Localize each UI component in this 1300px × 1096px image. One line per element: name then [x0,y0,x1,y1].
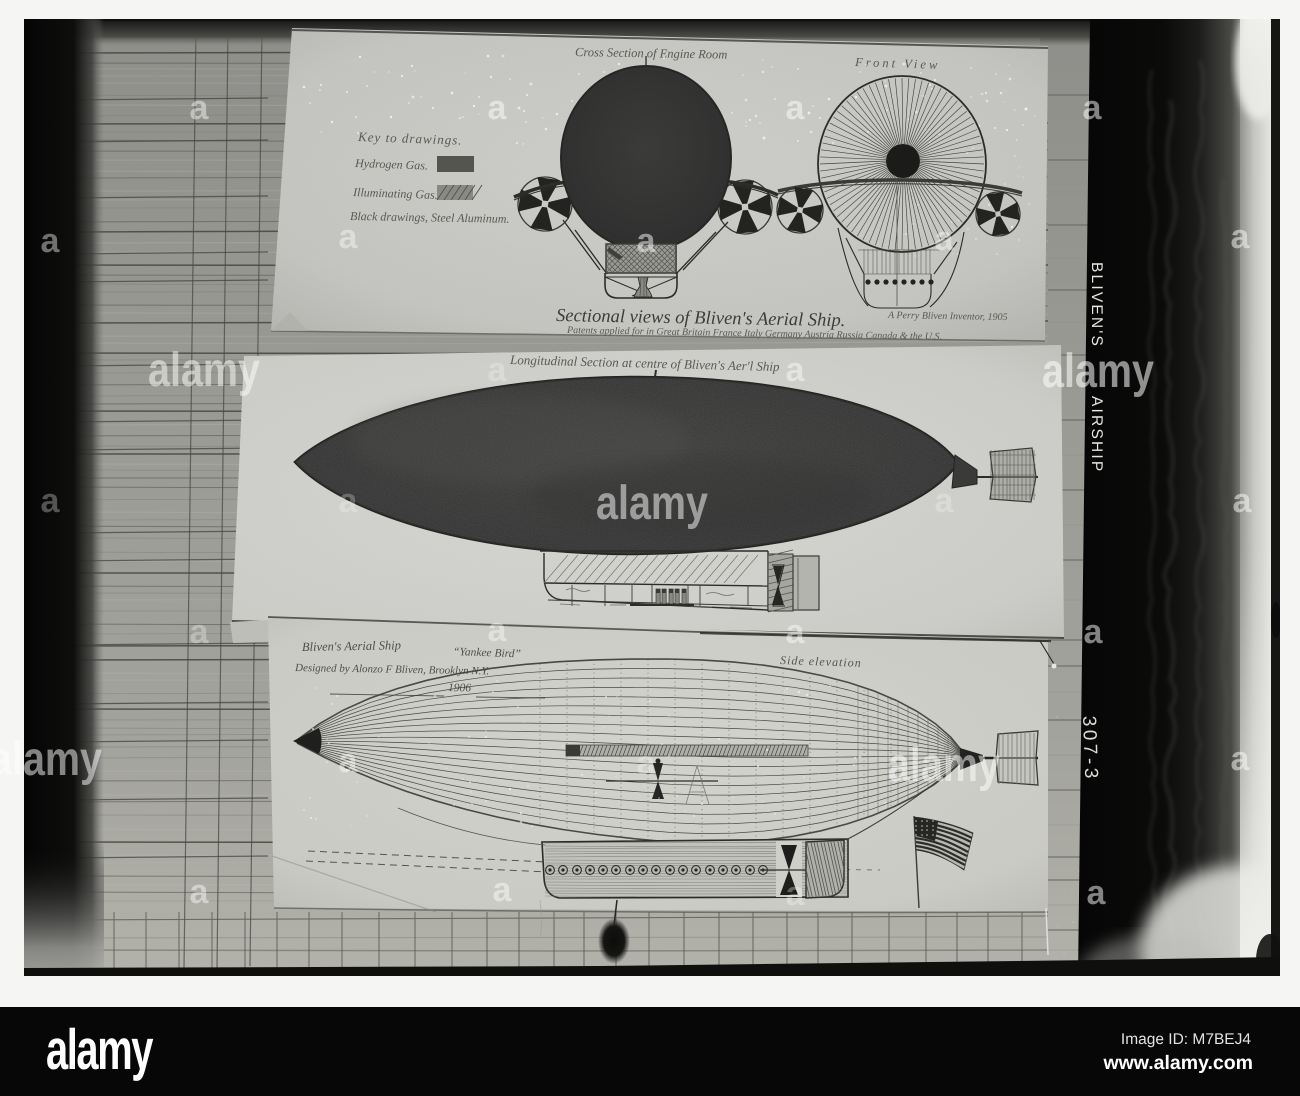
svg-text:alamy: alamy [0,733,102,786]
svg-text:Illuminating Gas.: Illuminating Gas. [352,185,438,202]
svg-text:a: a [1084,613,1104,651]
svg-text:a: a [41,222,61,260]
svg-text:a: a [935,220,955,258]
svg-text:a: a [786,875,806,913]
svg-text:a: a [637,744,657,782]
svg-text:a: a [786,351,806,389]
svg-text:alamy: alamy [148,344,260,397]
svg-text:Cross Section of Engine Room: Cross Section of Engine Room [575,45,728,62]
svg-text:a: a [190,613,210,651]
svg-text:Image ID: M7BEJ4: Image ID: M7BEJ4 [1121,1031,1251,1048]
svg-text:a: a [339,482,359,520]
svg-text:alamy: alamy [596,477,708,530]
svg-text:a: a [488,351,508,389]
svg-text:Side elevation: Side elevation [780,653,862,670]
svg-text:www.alamy.com: www.alamy.com [1102,1052,1253,1074]
svg-text:a: a [339,742,359,780]
svg-text:a: a [637,222,657,260]
svg-text:Bliven's Aerial Ship: Bliven's Aerial Ship [302,638,401,654]
svg-text:a: a [1087,874,1107,912]
svg-text:307-3: 307-3 [1078,715,1101,782]
svg-text:a: a [1083,89,1103,127]
svg-text:a: a [1231,218,1251,256]
svg-text:alamy: alamy [1042,345,1154,398]
svg-text:a: a [190,873,210,911]
svg-text:a: a [488,89,508,127]
svg-text:AIRSHIP: AIRSHIP [1088,396,1105,473]
svg-text:a: a [41,482,61,520]
svg-text:A Perry Bliven Inventor, 1905: A Perry Bliven Inventor, 1905 [887,310,1008,323]
svg-text:a: a [190,89,210,127]
svg-text:a: a [786,89,806,127]
svg-text:a: a [1231,740,1251,778]
svg-text:BLIVEN'S: BLIVEN'S [1088,262,1105,348]
svg-text:Hydrogen Gas.: Hydrogen Gas. [354,156,428,173]
svg-text:a: a [1233,482,1253,520]
svg-text:a: a [488,611,508,649]
svg-text:Black drawings, Steel Aluminum: Black drawings, Steel Aluminum. [350,209,510,226]
svg-text:alamy: alamy [46,1018,154,1082]
svg-text:a: a [493,871,513,909]
svg-text:alamy: alamy [888,739,1000,792]
svg-text:1906: 1906 [448,682,471,694]
svg-text:a: a [935,482,955,520]
svg-text:a: a [786,613,806,651]
svg-text:a: a [339,218,359,256]
